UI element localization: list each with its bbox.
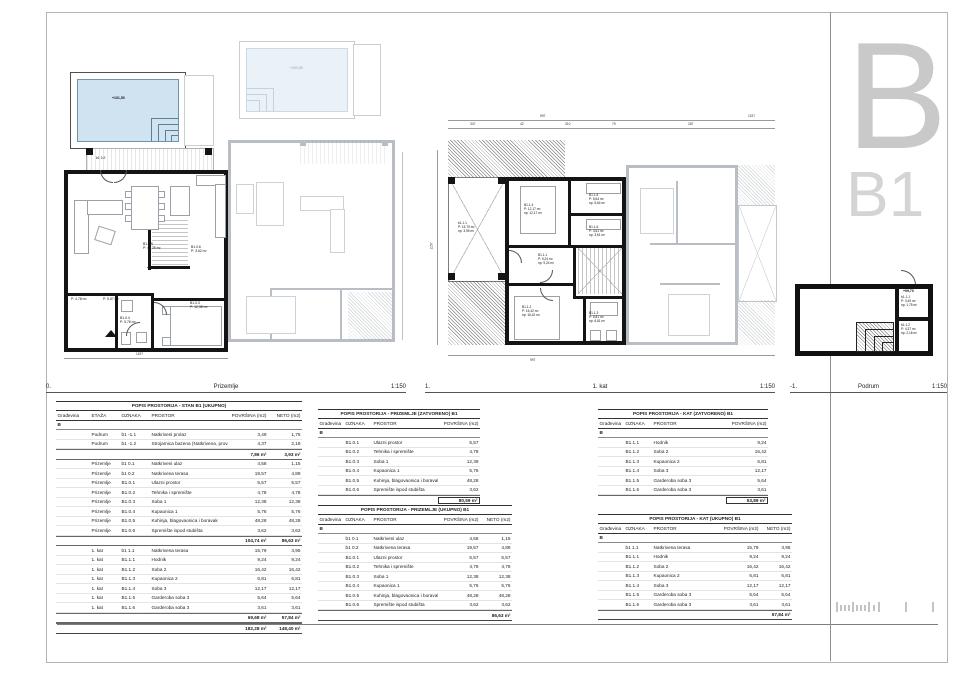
table-cell: Soba 3 [150,586,228,591]
table-cell: PROSTOR [652,526,718,531]
table-cell: Natkrivena terasa [372,545,438,550]
sofa [87,200,123,215]
interior-wall [650,243,738,245]
table-cell: B [598,430,624,435]
table-row: B1.0.5Kuhinja, blagovaonica i boravak48,… [318,476,480,486]
table-cell: POVRŠINA (m2) [726,421,768,426]
table-row: B1.1.6Garderoba soba 33,61 [598,486,768,496]
table-cell: 6,81 [228,576,268,581]
table-cell: Spremište ispod stubišta [372,602,438,607]
table-row: 69,68 m²57,84 m² [56,613,302,624]
table-cell: B1.1.4 [624,583,652,588]
table-cell: 48,28 [438,593,480,598]
table-cell: 53,89 m² [726,497,768,504]
dim-label: 347 [470,122,476,126]
bed [640,188,674,234]
dim-line [437,150,438,345]
table-cell: 4,78 [438,564,480,569]
table-row: 1. katb1 1.1Natkrivena terasa15,793,95 [56,546,302,556]
table-row: B1.1.3Kupaonica 26,816,81 [598,572,792,582]
table-cell: Strojarnica bazena (Natkrivena, prov.) [150,441,228,446]
table-cell: 5,57 [228,480,268,485]
plan-title-underline [425,392,775,393]
table-cell: 12,17 [268,586,302,591]
table-cell: Hodnik [150,557,228,562]
table-cell: 4,78 [438,449,480,454]
table-cell: Prizemlje [90,518,120,523]
stairs [578,248,622,294]
table-row: PrizemljeB1.0.5Kuhinja, blagovaonica i b… [56,517,302,527]
table-row: GrađevinaOZNAKAPROSTORPOVRŠINA (m2) [318,419,480,429]
table-cell: B1.1.2 [120,567,150,572]
table-cell: 12,38 [438,574,480,579]
table-cell: Natkriveni ulaz [150,461,228,466]
table-row: 1. katB1.1.3Kupaonica 26,816,81 [56,575,302,585]
table-cell: Soba 2 [652,564,718,569]
table-cell: b1 -1.2 [120,441,150,446]
table-cell: 48,28 [438,478,480,483]
bed [668,294,710,336]
table-cell: 3,61 [760,602,792,607]
table-cell: 12,38 [268,499,302,504]
table-cell: B [318,526,344,531]
interior-wall [340,288,342,340]
table-row: GrađevinaOZNAKAPROSTORPOVRŠINA (m2)NETO … [318,515,512,525]
table-cell: Građevina [598,421,624,426]
upper-terrace-neighbour [738,205,777,302]
interior-wall [895,317,931,321]
table-row: B1.0.4Kupaonica 15,76 [318,467,480,477]
table-kat-ukupno: POPIS PROSTORIJA - KAT (UKUPNO) B1Građev… [598,514,792,620]
room-label: b1-1.2 P: 4,37 m² np: 2,18 m² [901,324,917,336]
table-row: B1.0.4Kupaonica 15,765,76 [318,582,512,592]
dim-line [448,355,775,356]
dim-line [448,128,775,129]
table-cell: B1.0.4 [120,509,150,514]
table-row: b1 1.1Natkrivena terasa15,793,95 [598,543,792,553]
plan-title-label: Podrum [790,384,947,390]
table-row: B1.0.1Ulazni prostor5,57 [318,438,480,448]
table-row: PrizemljeB1.0.2Tehnika i spremište4,784,… [56,488,302,498]
table-cell: B1.0.5 [120,518,150,523]
room-label: B1.1.6 P: 3,61 m² np: 3,61 m² [589,226,605,238]
table-cell: 6,81 [726,459,768,464]
table-cell: 12,38 [228,499,268,504]
roof-hatch-neighbour [738,300,775,345]
interior-wall [151,298,226,301]
table-cell: Prizemlje [90,480,120,485]
dining-table [256,182,284,226]
table-cell: B [56,422,90,427]
dim-label: 42 [520,122,524,126]
table-row: 1. katB1.1.4Soba 312,1712,17 [56,584,302,594]
table-cell: B1.0.4 [344,583,372,588]
table-cell: 12,17 [726,468,768,473]
table-cell: B1.0.5 [344,593,372,598]
table-cell: Spremište ispod stubišta [150,528,228,533]
plan-title-underline [790,392,947,393]
table-cell: b1 0.1 [344,536,372,541]
table-row: 104,74 m²86,63 m² [56,536,302,547]
table-cell: Prizemlje [90,499,120,504]
table-cell: B [598,535,624,540]
table-cell: B1.1.1 [120,557,150,562]
table-cell: 3,62 [268,528,302,533]
table-cell: 57,84 m² [268,615,302,620]
stair-step-line [882,342,894,352]
table-cell: Tehnika i spremište [372,449,438,454]
room-label: B1.1.4 P: 12,17 m² np: 12,17 m² [524,204,542,216]
table-cell: 16,42 [726,449,768,454]
table-row: GrađevinaOZNAKAPROSTORPOVRŠINA (m2)NETO … [598,524,792,534]
table-cell: 4,37 [228,441,268,446]
stairs-cross [578,248,622,294]
interior-wall [509,283,575,286]
table-cell: Soba 1 [372,574,438,579]
terrace-post [498,273,505,280]
terrace-post [205,148,212,155]
table-row: B1.0.3Soba 112,38 [318,457,480,467]
interior-wall [573,248,576,298]
table-cell: B1.1.5 [624,592,652,597]
graphic-scale-bar [836,596,940,616]
table-cell: B1.0.1 [344,555,372,560]
dining-table [131,186,159,230]
porch-hatch-neighbour [348,292,393,340]
table-cell: Garderoba soba 3 [150,595,228,600]
table-cell: Hodnik [652,440,726,445]
table-cell: B1.0.6 [344,602,372,607]
table-row: Podrumb1 -1.2Strojarnica bazena (Natkriv… [56,440,302,450]
terrace-post [448,273,455,280]
nightstand [162,337,171,346]
table-cell: 12,17 [718,583,760,588]
table-cell: Građevina [598,526,624,531]
table-cell: Garderoba soba 3 [652,592,718,597]
upper-terrace [448,177,507,282]
table-row: PrizemljeB1.0.6Spremište ispod stubišta3… [56,526,302,536]
dim-label: 79 [612,122,616,126]
dim-label: 997 [540,114,546,118]
sheet-code: B1 [846,162,924,226]
table-cell: B1.0.3 [120,499,150,504]
chair [125,203,132,210]
table-cell: 4,58 [228,461,268,466]
table-cell: Natkrivena terasa [652,545,718,550]
table-cell: 3,95 [268,548,302,553]
table-cell: 104,74 m² [228,538,268,543]
table-row: B [598,429,768,439]
table-cell: B1.1.3 [624,459,652,464]
table-cell: Garderoba soba 3 [652,602,718,607]
table-cell: 5,57 [438,555,480,560]
table-cell: b1 0.2 [120,471,150,476]
table-cell: 15,79 [718,545,760,550]
table-cell: 3,61 [726,487,768,492]
table-cell: B1.1.6 [624,487,652,492]
kitchen-counter [215,184,226,238]
table-cell: B1.1.4 [120,586,150,591]
table-title: POPIS PROSTORIJA - KAT (ZATVORENO) B1 [598,409,768,419]
table-cell: 5,64 [228,595,268,600]
table-cell: 5,76 [480,583,512,588]
table-cell: B1.0.3 [344,459,372,464]
deck-extension [184,75,214,146]
room-label: B1.1.5 P: 5,64 m² np: 5,64 m² [589,194,605,206]
table-row: B1.0.2Tehnika i spremište4,784,78 [318,563,512,573]
room-label: B1.0.1 P: 5,57 m² [103,293,119,301]
table-cell: Kupaonica 1 [150,509,228,514]
table-cell: 1. kat [90,557,120,562]
table-cell: B1.1.6 [120,605,150,610]
interior-wall [660,283,720,285]
table-row: B1.0.5Kuhinja, blagovaonica i boravak48,… [318,591,512,601]
dim-label: 1157 [430,242,434,249]
table-cell: Ulazni prostor [150,480,228,485]
table-cell: Soba 2 [150,567,228,572]
table-cell: Kuhinja, blagovaonica i boravak [372,478,438,483]
floor-elevation-label: +102,20 [147,266,160,270]
table-cell: Kuhinja, blagovaonica i boravak [372,593,438,598]
dim-label: 287 [688,122,694,126]
table-cell: 7,86 m² [228,452,268,457]
room-label: B1.0.6 P: 3,62 m² [191,245,207,253]
table-cell: 5,64 [718,592,760,597]
table-cell: B1.1.2 [624,564,652,569]
table-cell: 4,89 [268,471,302,476]
table-row: Prizemljeb1 0.2Natkrivena terasa19,574,8… [56,469,302,479]
table-row: PrizemljeB1.0.4Kupaonica 15,765,76 [56,507,302,517]
table-cell: 86,63 m² [480,613,512,618]
entrance-arrow [105,330,117,337]
table-cell: Garderoba soba 3 [652,487,726,492]
interior-wall [676,181,678,243]
table-cell: Garderoba soba 3 [652,478,726,483]
table-cell: Kupaonica 1 [372,468,438,473]
table-cell: PROSTOR [372,517,438,522]
table-cell: B1.1.5 [120,595,150,600]
table-cell: B1.0.1 [120,480,150,485]
room-label: B1.0.4 P: 5,76 m² [120,316,136,324]
table-cell: Prizemlje [90,461,120,466]
table-kat-zatvoreno: POPIS PROSTORIJA - KAT (ZATVORENO) B1Gra… [598,409,768,505]
table-cell: POVRŠINA (m2) [438,421,480,426]
table-row: B1.1.5Garderoba soba 35,645,64 [598,591,792,601]
table-cell: 3,62 [228,528,268,533]
table-cell: 148,40 m² [268,626,302,631]
table-cell: POVRŠINA (m2) [228,413,268,418]
table-cell: B [318,430,344,435]
table-row: 1. katB1.1.5Garderoba soba 35,645,64 [56,594,302,604]
terrace-post [382,140,388,146]
toilet [590,330,601,341]
kitchen-island [170,186,190,216]
table-cell: 5,57 [268,480,302,485]
table-row: B1.0.6Spremište ispod stubišta3,62 [318,486,480,496]
table-cell: POVRŠINA (m2) [718,526,760,531]
dim-label: 997 [530,358,536,362]
table-cell: Kupaonica 2 [652,459,726,464]
table-cell: Garderoba soba 3 [150,605,228,610]
table-cell: Soba 1 [372,459,438,464]
table-cell: Ulazni prostor [372,440,438,445]
interior-wall [573,296,622,299]
table-cell: 19,57 [438,545,480,550]
table-cell: 12,38 [438,459,480,464]
table-cell: Soba 2 [652,449,726,454]
table-cell: 16,42 [268,567,302,572]
table-cell: 9,24 [268,557,302,562]
room-label: B1.0.3 P: 12,38 m² [190,301,208,309]
table-cell: Građevina [56,413,90,418]
table-cell: 3,93 m² [268,452,302,457]
interior-wall [115,295,118,350]
pool-elevation-label-neighbour: +101,50 [290,66,303,70]
room-label: B1.0.5 P: 48,28 m² [143,242,161,250]
table-prizemlje-zatvoreno: POPIS PROSTORIJA - PRIZEMLJE (ZATVORENO)… [318,409,480,505]
table-cell: 3,62 [438,602,480,607]
room-label-terrace: b1 0.2 [96,156,105,160]
table-cell: 16,42 [228,567,268,572]
chair [158,215,165,222]
table-row: B1.0.6Spremište ispod stubišta3,623,62 [318,601,512,611]
table-cell: Natkriveni prolaz [150,432,228,437]
bed [246,296,296,334]
kitchen-island [236,184,254,214]
interior-wall [583,298,586,342]
plan-title-kat: 1. 1. kat 1:150 [425,384,775,390]
interior-wall [568,213,622,216]
table-cell: 4,78 [228,490,268,495]
table-cell: 16,42 [760,564,792,569]
table-cell: 9,24 [726,440,768,445]
table-cell: B1.1.5 [624,478,652,483]
pool-stair-line [247,100,260,111]
table-row: B [598,534,792,544]
roof-hatch-neighbour [738,165,775,205]
table-cell: 86,63 m² [268,538,302,543]
table-cell: NETO (m2) [480,517,512,522]
table-title: POPIS PROSTORIJA - STAN B1 (UKUPNO) [56,401,302,411]
dim-label: 1197 [136,352,143,356]
table-title: POPIS PROSTORIJA - KAT (UKUPNO) B1 [598,514,792,524]
bed [514,296,560,340]
table-cell: 4,89 [480,545,512,550]
table-cell: 1. kat [90,576,120,581]
table-row: GrađevinaETAŽAOZNAKAPROSTORPOVRŠINA (m2)… [56,411,302,421]
table-cell: B1.0.2 [344,564,372,569]
table-cell: Kupaonica 1 [372,583,438,588]
interior-wall [270,288,395,290]
table-cell: PROSTOR [372,421,438,426]
table-cell: b1 -1.1 [120,432,150,437]
table-row: B1.1.2Soba 216,4216,42 [598,562,792,572]
table-cell: Prizemlje [90,509,120,514]
basement-elevation-label: +99,70 [903,289,914,293]
pool-water [77,79,179,142]
table-row: 7,86 m²3,93 m² [56,449,302,460]
plan-title-underline [46,392,406,393]
table-cell: 16,42 [718,564,760,569]
chair [125,191,132,198]
table-cell: 9,24 [760,554,792,559]
table-cell: 3,62 [480,602,512,607]
room-label: B1.0.2 P: 4,78 m² [71,293,87,301]
table-row: GrađevinaOZNAKAPROSTORPOVRŠINA (m2) [598,419,768,429]
table-cell: B1.0.2 [344,449,372,454]
table-cell: 4,78 [480,564,512,569]
table-row: B1.1.5Garderoba soba 35,64 [598,476,768,486]
table-cell: 3,49 [228,432,268,437]
table-cell: b1 0.1 [120,461,150,466]
pool-elevation-label: +101,50 [112,96,125,100]
table-cell: OZNAKA [624,421,652,426]
table-row: B1.1.3Kupaonica 26,81 [598,457,768,467]
table-cell: Soba 3 [652,468,726,473]
table-cell: 69,68 m² [228,615,268,620]
table-row: B1.1.2Soba 216,42 [598,448,768,458]
plan-title-label: Prizemlje [46,384,406,390]
table-cell: Soba 1 [150,499,228,504]
deck-extension-neighbour [353,44,381,116]
table-cell: B1.1.3 [624,573,652,578]
table-cell: Kupaonica 2 [150,576,228,581]
table-cell: b1 1.1 [120,548,150,553]
table-cell: Građevina [318,517,344,522]
table-cell: B1.1.1 [624,440,652,445]
bed [170,306,222,346]
table-cell: 1,75 [268,432,302,437]
covered-terrace-neighbour [300,140,388,164]
dim-line [64,358,228,359]
table-row: 53,89 m² [598,495,768,505]
table-cell: 5,64 [268,595,302,600]
table-row: B1.1.1Hodnik9,24 [598,438,768,448]
table-cell: B1.1.1 [624,554,652,559]
chair [125,215,132,222]
table-row: 1. katB1.1.2Soba 216,4216,42 [56,565,302,575]
table-cell: 3,62 [438,487,480,492]
table-cell: PROSTOR [652,421,726,426]
terrace-post [300,140,306,146]
plan-title-label: 1. kat [425,384,775,390]
table-cell: 5,57 [438,440,480,445]
table-prizemlje-ukupno: POPIS PROSTORIJA - PRIZEMLJE (UKUPNO) B1… [318,505,512,621]
terrace-cross-marking [739,206,776,301]
table-cell: Soba 3 [652,583,718,588]
table-row: 80,59 m² [318,495,480,505]
table-row: B [56,421,302,431]
table-cell: 4,78 [268,490,302,495]
terrace-post [448,177,455,184]
table-cell: 9,24 [718,554,760,559]
table-cell: Prizemlje [90,471,120,476]
dim-label: 1197 [748,114,755,118]
table-cell: NETO (m2) [760,526,792,531]
table-cell: B1.0.5 [344,478,372,483]
table-cell: 12,17 [760,583,792,588]
table-cell: Natkrivena terasa [150,548,228,553]
table-cell: 1. kat [90,595,120,600]
table-cell: 48,28 [480,593,512,598]
table-row: Podrumb1 -1.1Natkriveni prolaz3,491,75 [56,430,302,440]
sink [606,330,617,341]
table-cell: Hodnik [652,554,718,559]
table-row: 182,28 m²148,40 m² [56,623,302,634]
table-cell: Podrum [90,432,120,437]
table-cell: Tehnika i spremište [372,564,438,569]
table-cell: 3,61 [718,602,760,607]
